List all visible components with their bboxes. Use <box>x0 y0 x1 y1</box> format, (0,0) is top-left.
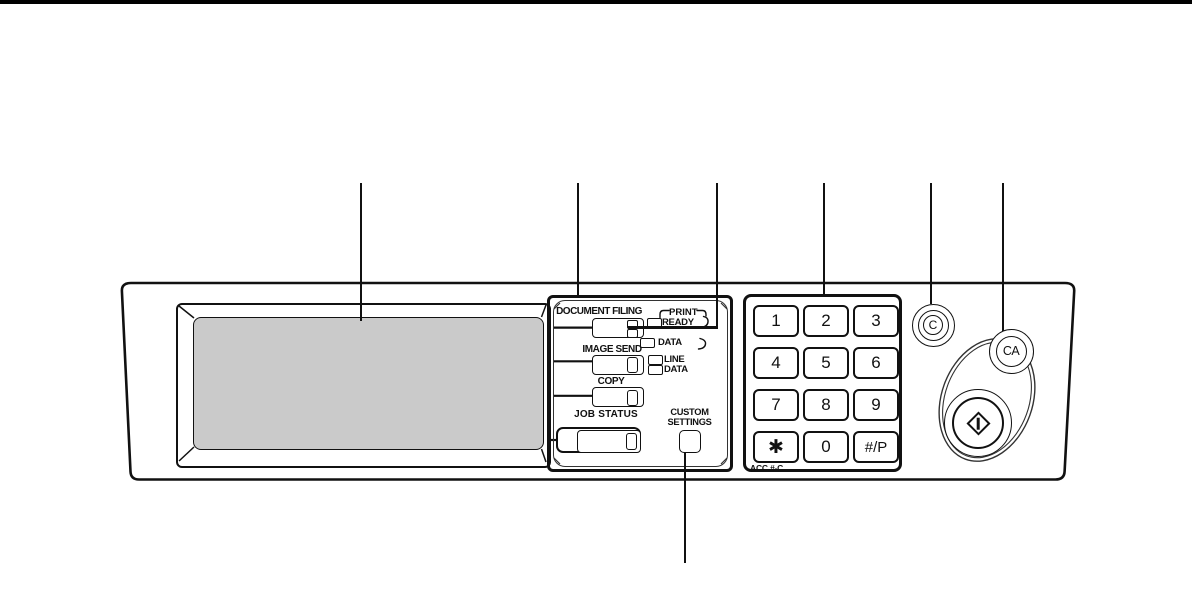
callout-clear-all-key <box>1002 183 1005 331</box>
keypad-key-hash-p[interactable]: #/P <box>853 431 899 463</box>
custom-settings-label: CUSTOM SETTINGS <box>663 407 716 428</box>
keypad-key-star[interactable]: ✱ <box>753 431 799 463</box>
document-filing-led-bottom <box>627 329 638 339</box>
keypad-key-2[interactable]: 2 <box>803 305 849 337</box>
keypad-key-7[interactable]: 7 <box>753 389 799 421</box>
callout-print-indicators-v <box>716 183 719 329</box>
job-status-led <box>626 433 637 450</box>
keypad-key-4[interactable]: 4 <box>753 347 799 379</box>
clear-key-cap: C <box>923 315 943 335</box>
touch-screen[interactable] <box>193 317 544 450</box>
job-status-label: JOB STATUS <box>558 409 654 420</box>
callout-numeric-keys <box>823 183 826 295</box>
keypad-key-6[interactable]: 6 <box>853 347 899 379</box>
callout-clear-key <box>930 183 933 304</box>
start-diamond-icon <box>966 411 990 435</box>
keypad-key-0[interactable]: 0 <box>803 431 849 463</box>
clear-all-key-label: CA <box>1003 344 1019 358</box>
callout-touch-screen <box>360 183 363 321</box>
callout-mode-keys <box>577 183 580 296</box>
image-send-led <box>627 357 638 373</box>
keypad-key-1[interactable]: 1 <box>753 305 799 337</box>
callout-print-indicators-h <box>628 326 718 329</box>
start-key-cap <box>952 397 1004 449</box>
clear-all-key-cap: CA <box>996 336 1027 367</box>
line-led <box>648 355 663 365</box>
start-diamond-bar <box>977 417 980 429</box>
keypad-key-8[interactable]: 8 <box>803 389 849 421</box>
clear-key[interactable]: C <box>912 304 955 347</box>
clear-all-key[interactable]: CA <box>989 329 1034 374</box>
print-data-label: DATA <box>658 337 682 348</box>
keypad-key-5[interactable]: 5 <box>803 347 849 379</box>
callout-custom-settings <box>684 452 687 563</box>
line-data-label: DATA <box>664 364 688 375</box>
line-data-led <box>648 365 663 375</box>
keypad-key-3[interactable]: 3 <box>853 305 899 337</box>
control-panel-diagram: DOCUMENT FILING IMAGE SEND COPY JOB STAT… <box>0 0 1192 592</box>
keypad-key-9[interactable]: 9 <box>853 389 899 421</box>
copy-led <box>627 390 638 406</box>
print-data-led <box>640 338 655 348</box>
clear-key-ring: C <box>918 310 949 341</box>
acc-clear-label: ACC.#-C <box>750 463 783 473</box>
start-key[interactable] <box>944 389 1012 457</box>
document-filing-label: DOCUMENT FILING <box>551 306 647 317</box>
copy-label: COPY <box>566 376 656 387</box>
custom-settings-key[interactable] <box>679 430 701 453</box>
clear-key-label: C <box>929 318 938 332</box>
